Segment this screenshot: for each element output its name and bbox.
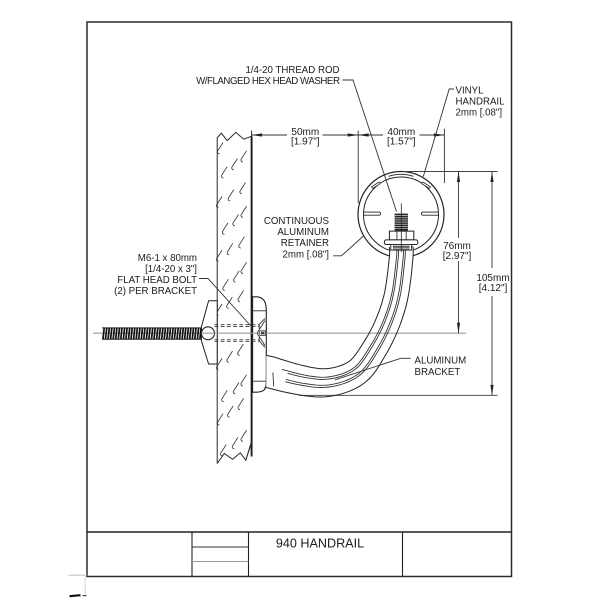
svg-text:[2.97"]: [2.97"] bbox=[443, 251, 472, 262]
svg-text:ALUMINUM: ALUMINUM bbox=[277, 227, 329, 238]
svg-text:1/4-20 THREAD ROD: 1/4-20 THREAD ROD bbox=[245, 65, 339, 76]
svg-text:[1.57"]: [1.57"] bbox=[387, 136, 416, 147]
svg-text:M6-1 x 80mm: M6-1 x 80mm bbox=[138, 253, 197, 264]
svg-text:ALUMINUM: ALUMINUM bbox=[415, 356, 467, 367]
svg-text:RETAINER: RETAINER bbox=[281, 238, 329, 249]
svg-text:W/FLANGED HEX HEAD WASHER: W/FLANGED HEX HEAD WASHER bbox=[196, 76, 340, 87]
svg-text:BRACKET: BRACKET bbox=[415, 367, 461, 378]
svg-text:[4.12"]: [4.12"] bbox=[479, 283, 508, 294]
svg-text:2mm [.08"]: 2mm [.08"] bbox=[282, 249, 329, 260]
svg-text:940 HANDRAIL: 940 HANDRAIL bbox=[276, 536, 364, 550]
svg-text:(2) PER BRACKET: (2) PER BRACKET bbox=[114, 286, 197, 297]
svg-text:[1/4-20 x 3"]: [1/4-20 x 3"] bbox=[145, 264, 197, 275]
svg-text:CONTINUOUS: CONTINUOUS bbox=[264, 216, 330, 227]
svg-text:2mm [.08"]: 2mm [.08"] bbox=[456, 108, 503, 119]
svg-text:VINYL: VINYL bbox=[456, 86, 485, 97]
svg-text:HANDRAIL: HANDRAIL bbox=[456, 97, 506, 108]
svg-text:FLAT HEAD BOLT: FLAT HEAD BOLT bbox=[117, 275, 197, 286]
svg-text:[1.97"]: [1.97"] bbox=[291, 136, 320, 147]
